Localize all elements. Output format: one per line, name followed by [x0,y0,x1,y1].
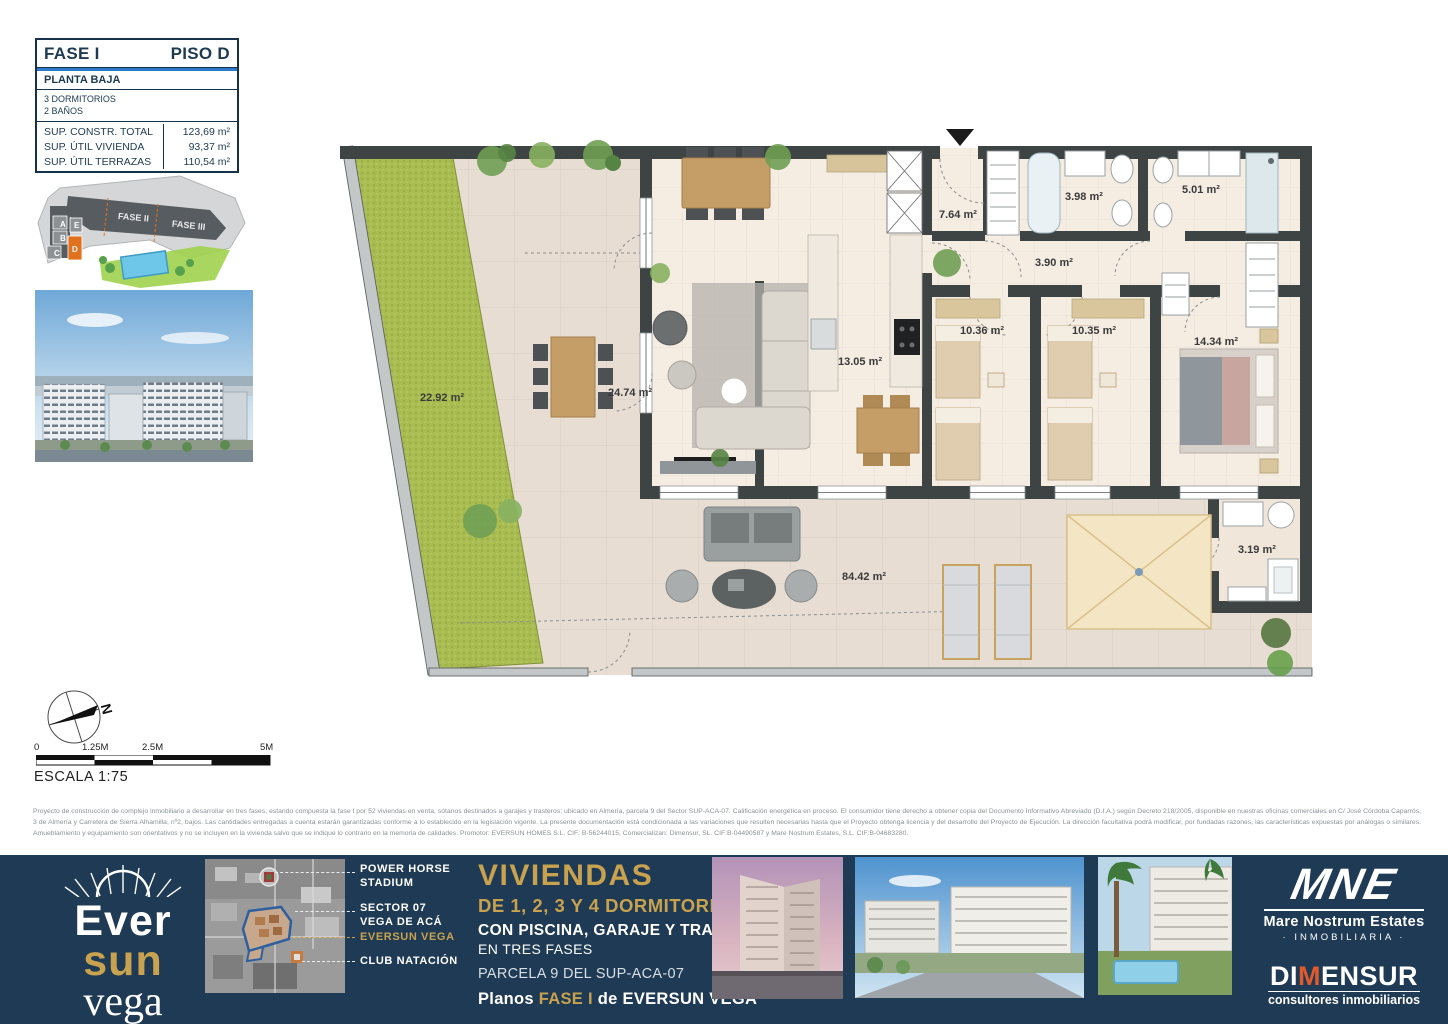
room-label-laundry: 3.19 m² [1238,544,1276,556]
north-label: N [98,702,116,716]
master-bedroom-furniture [1180,329,1278,473]
piso-label: PISO D [171,44,230,64]
brand-line-sun: sun [48,942,198,982]
sink [811,319,836,349]
surface-table: SUP. CONSTR. TOTAL 123,69 m² SUP. ÚTIL V… [37,122,237,171]
room-label-terrace: 84.42 m² [842,571,886,583]
brochure-page: FASE I PISO D PLANTA BAJA 3 DORMITORIOS … [0,0,1448,1024]
mne-logo: MNE Mare Nostrum Estates · INMOBILIARIA … [1258,865,1430,943]
unit-info-box: FASE I PISO D PLANTA BAJA 3 DORMITORIOS … [35,38,239,173]
unit-e-label: E [74,221,80,230]
map-label-club-natacion: CLUB NATACIÓN [360,955,458,969]
map-label-stadium: POWER HORSE STADIUM [360,863,450,891]
outdoor-chair [666,570,698,602]
washer [1268,502,1294,528]
surface-value: 93,37 m² [163,139,237,154]
scale-tick: 5M [260,742,273,753]
connector-line [295,911,355,912]
scale-label: ESCALA 1:75 [34,769,128,785]
room-label-living: 24.74 m² [608,387,652,399]
tv-bench [660,461,756,474]
sun-rays-icon [63,863,183,897]
wardrobe [936,299,1000,318]
surface-value: 123,69 m² [163,124,237,139]
rooms-summary: 3 DORMITORIOS 2 BAÑOS [37,90,237,122]
dimensur-tagline: consultores inmobiliarios [1268,991,1420,1007]
shower [1246,153,1278,233]
room-label-bath2: 5.01 m² [1182,184,1220,196]
mne-acronym: MNE [1254,865,1434,905]
dimensur-m: M [1298,961,1321,991]
table-row: SUP. ÚTIL VIVIENDA 93,37 m² [37,139,237,154]
render-photo-dusk [712,857,843,999]
surface-label: SUP. ÚTIL VIVIENDA [37,139,163,154]
toilet [1153,157,1173,183]
render-photo-street [855,857,1084,998]
render-photo-pool [1098,857,1232,995]
nightstand [1100,373,1116,387]
floor-plan: 24.74 m² 7.64 m² 3.98 m² 5.01 m² 3.90 m²… [330,123,1320,693]
building-render-photo [35,290,253,462]
kitchen-table [857,408,919,453]
dimensur-name: DIMENSUR [1258,963,1430,990]
site-key-plan: A E B C D FASE II FASE III [30,168,252,300]
bidet [1154,203,1172,227]
connector-line [290,937,355,938]
mne-tagline: · INMOBILIARIA · [1258,932,1430,943]
cooktop [894,319,920,355]
scale-tick: 2.5M [142,742,163,753]
scale-tick: 1.25M [82,742,108,753]
dining-table [682,147,770,220]
wardrobe [1072,299,1144,318]
room-label-kitchen: 13.05 m² [838,356,882,368]
unit-a-label: A [60,220,66,229]
unit-info-header: FASE I PISO D [37,40,237,68]
sink [1065,151,1105,176]
scale-bar-graphic [36,755,272,767]
floor-lamp [668,361,696,389]
scale-tick: 0 [34,742,39,753]
room-label-garden: 22.92 m² [420,392,464,404]
legal-disclaimer: Proyecto de construcción de complejo inm… [33,806,1421,839]
unit-c-label: C [54,249,60,258]
banos-label: 2 BAÑOS [44,105,230,117]
dimensur-logo: DIMENSUR consultores inmobiliarios [1258,963,1430,1009]
terrace-dining [533,337,613,417]
footer: Ever sun vega [0,855,1448,1024]
bathtub [1028,153,1060,233]
north-compass: N [36,683,126,753]
connector-line [275,872,355,873]
room-label-bedroom2: 10.35 m² [1072,325,1116,337]
armchair [653,311,687,345]
unit-d-label: D [72,245,78,254]
eversun-vega-logo: Ever sun vega [48,863,198,1023]
room-label-bath1: 3.98 m² [1065,191,1103,203]
bidet [1112,200,1132,226]
outdoor-chair [785,570,817,602]
planos-fase: FASE I [539,990,593,1008]
table-row: SUP. CONSTR. TOTAL 123,69 m² [37,124,237,139]
connector-line [302,961,355,962]
room-label-hall: 7.64 m² [939,209,977,221]
room-label-master: 14.34 m² [1194,336,1238,348]
nightstand [1260,329,1278,343]
map-label-sector: SECTOR 07 VEGA DE ACÁ [360,902,442,930]
brand-line-ever: Ever [48,902,198,942]
outdoor-table [551,337,595,417]
pergola [1067,515,1211,629]
north-needle [50,705,98,725]
planta-label: PLANTA BAJA [37,71,237,90]
fase-label: FASE I [44,44,100,64]
dormitorios-label: 3 DORMITORIOS [44,93,230,105]
coffee-table [721,378,747,404]
stadium-marker [260,868,278,886]
unit-b-label: B [60,234,66,243]
map-label-eversun-vega: EVERSUN VEGA [360,931,455,945]
nightstand [988,373,1004,387]
brand-line-vega: vega [48,981,198,1023]
room-label-bedroom1: 10.36 m² [960,325,1004,337]
entry-arrow [946,129,974,146]
surface-label: SUP. CONSTR. TOTAL [37,124,163,139]
location-map [205,859,345,993]
room-label-corridor: 3.90 m² [1035,257,1073,269]
toilet [1111,155,1133,183]
nightstand [1260,459,1278,473]
mne-name: Mare Nostrum Estates [1258,914,1430,930]
